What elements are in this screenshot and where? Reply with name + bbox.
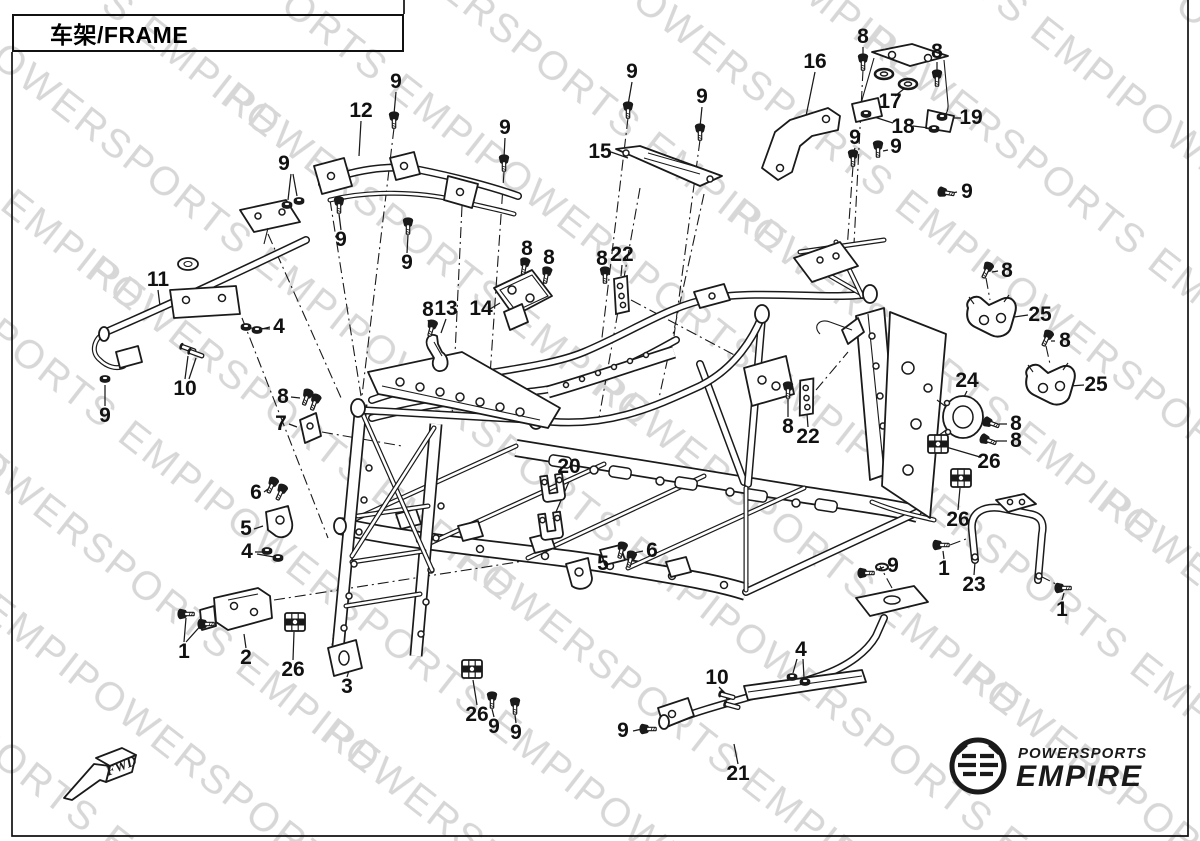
callout-8: 8: [422, 298, 434, 322]
callout-9: 9: [401, 251, 413, 275]
callout-8: 8: [596, 247, 608, 271]
callout-3: 3: [341, 675, 353, 699]
callout-10: 10: [173, 377, 196, 401]
parts-diagram-page: POWERSPORTS EMPIRE POWERSPORTS EMPIRE PO…: [0, 0, 1200, 841]
callout-25: 25: [1028, 303, 1051, 327]
callout-8: 8: [1001, 259, 1013, 283]
title-box: 车架/FRAME: [12, 14, 404, 52]
callout-9: 9: [499, 116, 511, 140]
callout-1: 1: [1056, 598, 1068, 622]
callout-21: 21: [726, 762, 749, 786]
callout-8: 8: [857, 25, 869, 49]
callout-8: 8: [1010, 429, 1022, 453]
callout-9: 9: [99, 404, 111, 428]
callout-2: 2: [240, 646, 252, 670]
callout-9: 9: [849, 126, 861, 150]
callout-6: 6: [646, 539, 658, 563]
callout-11: 11: [147, 268, 169, 292]
callout-9: 9: [626, 60, 638, 84]
page-title: 车架/FRAME: [50, 16, 188, 50]
callout-1: 1: [178, 640, 190, 664]
callout-6: 6: [250, 481, 262, 505]
callout-14: 14: [469, 297, 492, 321]
callout-9: 9: [488, 715, 500, 739]
callout-17: 17: [878, 90, 901, 114]
callout-26: 26: [281, 658, 304, 682]
callout-22: 22: [796, 425, 819, 449]
callout-7: 7: [275, 412, 287, 436]
callout-9: 9: [390, 70, 402, 94]
callout-9: 9: [961, 180, 973, 204]
callout-10: 10: [705, 666, 728, 690]
callout-13: 13: [434, 297, 457, 321]
callout-8: 8: [782, 415, 794, 439]
callout-22: 22: [610, 243, 633, 267]
callout-8: 8: [277, 385, 289, 409]
callout-9: 9: [278, 152, 290, 176]
callout-8: 8: [931, 40, 943, 64]
callout-24: 24: [955, 369, 978, 393]
callout-8: 8: [1059, 329, 1071, 353]
callout-20: 20: [557, 455, 580, 479]
callout-26: 26: [946, 508, 969, 532]
callout-4: 4: [273, 315, 285, 339]
callout-25: 25: [1084, 373, 1107, 397]
callout-15: 15: [588, 140, 611, 164]
callout-8: 8: [543, 246, 555, 270]
callout-9: 9: [617, 719, 629, 743]
callout-9: 9: [335, 228, 347, 252]
callout-8: 8: [521, 237, 533, 261]
brand-name-bottom: EMPIRE: [1016, 760, 1143, 793]
callout-1: 1: [938, 557, 950, 581]
callout-4: 4: [241, 540, 253, 564]
callout-9: 9: [890, 135, 902, 159]
callout-19: 19: [959, 106, 982, 130]
callout-16: 16: [803, 50, 826, 74]
callout-9: 9: [510, 721, 522, 745]
callout-26: 26: [977, 450, 1000, 474]
callout-12: 12: [349, 99, 372, 123]
callout-5: 5: [597, 552, 609, 576]
callout-5: 5: [240, 517, 252, 541]
callout-23: 23: [962, 573, 985, 597]
callout-9: 9: [887, 554, 899, 578]
callout-4: 4: [795, 638, 807, 662]
callout-26: 26: [465, 703, 488, 727]
callout-9: 9: [696, 85, 708, 109]
